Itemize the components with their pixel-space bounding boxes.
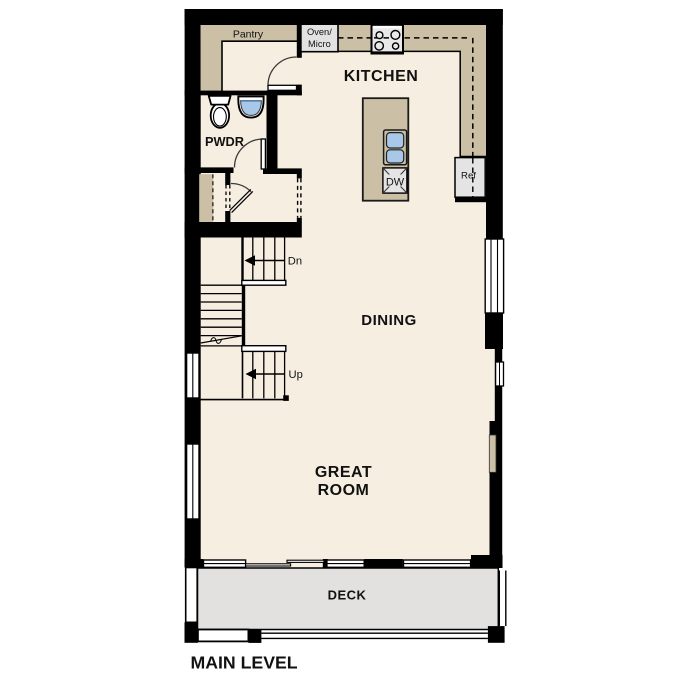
- svg-text:MAIN LEVEL: MAIN LEVEL: [191, 652, 298, 672]
- svg-text:Oven/: Oven/: [307, 27, 332, 37]
- svg-text:DINING: DINING: [361, 312, 417, 329]
- svg-text:GREAT: GREAT: [315, 464, 372, 481]
- svg-text:Ref: Ref: [461, 171, 476, 182]
- svg-text:Dn: Dn: [288, 255, 302, 267]
- svg-text:ROOM: ROOM: [318, 482, 370, 499]
- svg-text:DECK: DECK: [328, 588, 367, 603]
- svg-text:PWDR: PWDR: [205, 134, 244, 149]
- svg-text:KITCHEN: KITCHEN: [344, 68, 419, 85]
- svg-text:Up: Up: [289, 369, 303, 381]
- svg-text:Pantry: Pantry: [233, 29, 264, 41]
- svg-text:Micro: Micro: [308, 39, 331, 49]
- svg-text:DW: DW: [386, 176, 405, 188]
